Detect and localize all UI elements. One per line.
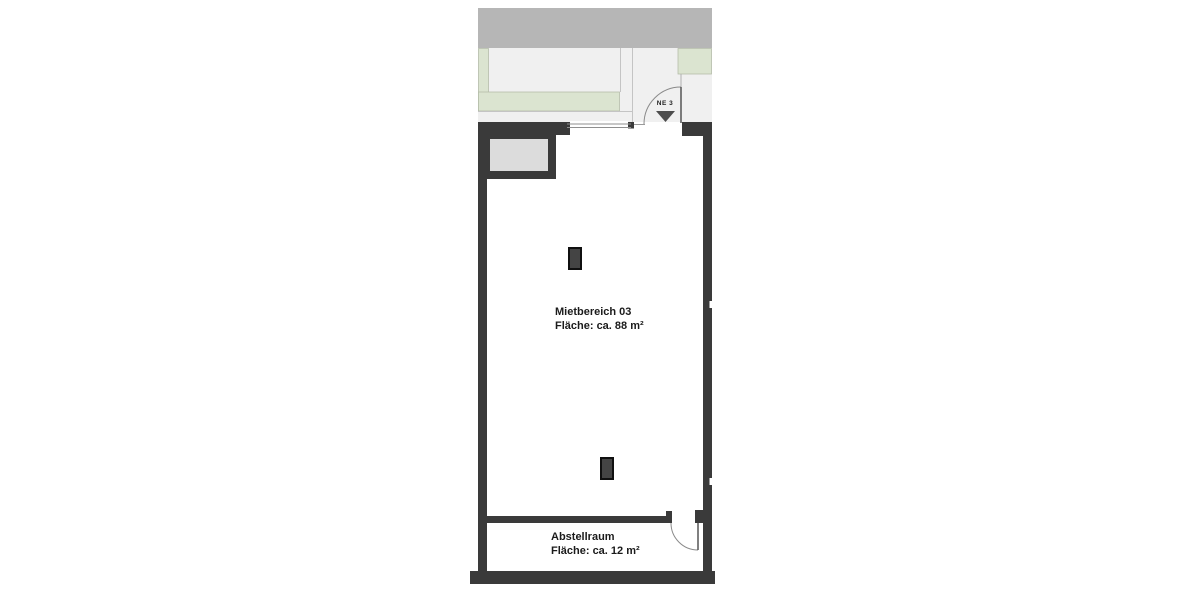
street-band [478,8,712,48]
room-area: Fläche: ca. 12 m² [551,545,640,559]
room-name: Mietbereich 03 [555,306,644,320]
room-name: Abstellraum [551,531,640,545]
shaft-interior [490,139,548,171]
room-label-mietbereich: Mietbereich 03 Fläche: ca. 88 m² [555,306,644,333]
exterior-wall-bottom [470,571,715,584]
door-jamb-right [695,510,712,523]
door-jamb-left [666,511,672,517]
floorplan-page: NE 3 Mietbereich 03 Fläche: ca. 88 m² Ab… [0,0,1200,600]
wall-joint-notch-lower [710,478,714,485]
column-lower [601,458,613,479]
room-label-abstellraum: Abstellraum Fläche: ca. 12 m² [551,531,640,558]
column-upper [569,248,581,269]
wall-joint-notch-upper [710,301,714,308]
partition-wall-abstellraum [478,516,672,523]
room-area: Fläche: ca. 88 m² [555,320,644,334]
window [567,121,631,131]
exterior-wall-top-right [682,122,712,136]
floorplan-drawing [0,0,1200,600]
planting-strip-front [479,92,620,111]
entrance-label: NE 3 [648,100,682,107]
exterior-wall-left [478,122,487,583]
planting-strip-right [678,49,712,75]
